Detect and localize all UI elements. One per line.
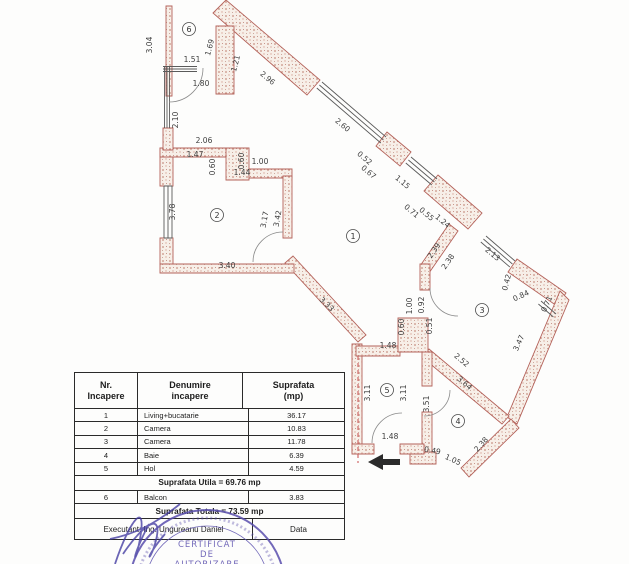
table-row: 1 Living+bucatarie 36.17 <box>75 408 344 421</box>
suprafata-utila-row: Suprafata Utila = 69.76 mp <box>75 475 344 490</box>
table-row-balcon: 6 Balcon 3.83 <box>75 490 344 503</box>
areas-table: Nr. Incapere Denumire incapere Suprafata… <box>74 372 345 540</box>
dimension-label: 3.47 <box>511 333 526 352</box>
dimension-label: 0.55 <box>417 205 436 223</box>
dimension-label: 1.51 <box>184 55 201 64</box>
dimension-label: 3.04 <box>145 36 154 53</box>
room-number: 4 <box>455 417 460 426</box>
table-row: 2 Camera 10.83 <box>75 421 344 434</box>
header-suprafata: Suprafata (mp) <box>243 373 344 408</box>
room-number: 3 <box>479 306 484 315</box>
dimension-label: 0.92 <box>417 296 426 313</box>
dimension-label: 1.00 <box>405 297 414 314</box>
dimension-label: 1.05 <box>444 452 463 467</box>
dimension-label: 3.42 <box>272 209 284 227</box>
dimension-label: 1.47 <box>187 150 204 159</box>
dimension-label: 3.40 <box>219 261 236 270</box>
dimension-label: 0.84 <box>511 288 530 303</box>
dimension-label: 2.10 <box>171 111 180 128</box>
dimension-label: 1.00 <box>252 157 269 166</box>
suprafata-totala-row: Suprafata Totala = 73.59 mp <box>75 503 344 518</box>
dimension-label: 2.52 <box>452 351 471 369</box>
table-row: 3 Camera 11.78 <box>75 435 344 448</box>
dimension-label: 0.67 <box>359 163 378 181</box>
dimension-label: 2.06 <box>196 136 213 145</box>
dimension-label: 1.69 <box>203 38 216 57</box>
data-label: Data <box>253 519 344 539</box>
dimension-label: 0.51 <box>425 317 434 334</box>
dimension-label: 3.17 <box>259 210 271 228</box>
dimension-label: 0.60 <box>208 158 217 175</box>
room-number: 5 <box>384 386 389 395</box>
dimension-label: 0.60 <box>237 152 246 169</box>
executant-label: Executant: Ing. Ungureanu Daniel <box>75 519 253 539</box>
executant-row: Executant: Ing. Ungureanu Daniel Data <box>75 518 344 539</box>
room-number: 1 <box>350 232 355 241</box>
table-header-row: Nr. Incapere Denumire incapere Suprafata… <box>75 373 344 408</box>
dimension-label: 3.51 <box>422 395 431 412</box>
dimension-label: 1.48 <box>382 432 399 441</box>
windows <box>163 66 556 317</box>
room-number: 6 <box>186 25 191 34</box>
scanned-floorplan-page: 3.041.691.212.961.511.802.102.600.520.67… <box>0 0 629 564</box>
table-row: 4 Baie 6.39 <box>75 448 344 461</box>
dimension-label: 0.42 <box>500 273 513 292</box>
dimension-label: 2.60 <box>333 116 352 134</box>
table-row: 5 Hol 4.59 <box>75 462 344 475</box>
dimension-label: 1.15 <box>393 173 412 191</box>
dimension-label: 1.80 <box>193 79 210 88</box>
room-number: 2 <box>214 211 219 220</box>
dimension-label: 2.96 <box>258 69 277 87</box>
header-nr-incapere: Nr. Incapere <box>75 373 138 408</box>
header-denumire: Denumire incapere <box>138 373 243 408</box>
dimension-label: 3.11 <box>363 384 372 401</box>
orientation-arrow-icon <box>368 454 400 470</box>
dimension-label: 0.60 <box>397 318 406 335</box>
dimension-label: 3.11 <box>399 384 408 401</box>
dimension-label: 1.44 <box>234 168 251 177</box>
dimension-label: 3.78 <box>168 203 177 220</box>
dimension-label: 1.48 <box>380 341 397 350</box>
